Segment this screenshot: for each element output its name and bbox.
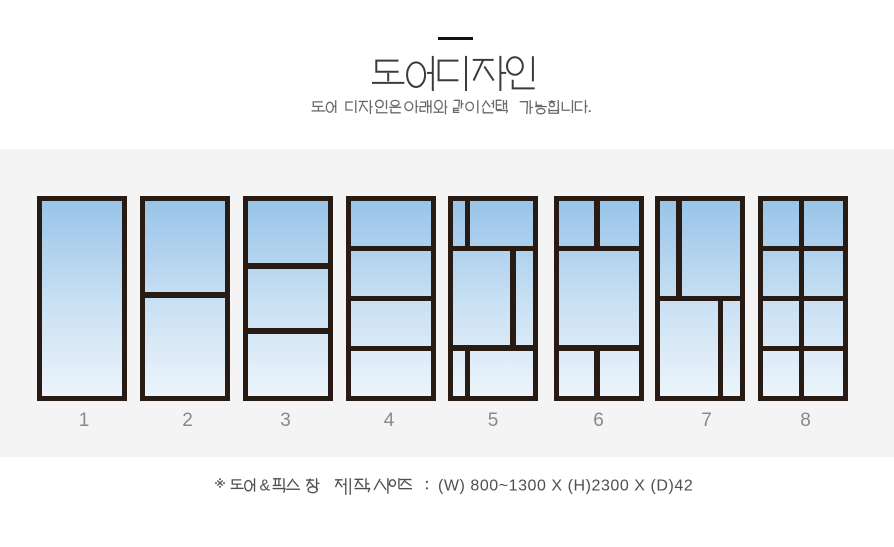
svg-text:(W) 800~1300 X (H)2300 X (D)42: (W) 800~1300 X (H)2300 X (D)42 bbox=[438, 478, 693, 495]
svg-text:&: & bbox=[260, 478, 271, 495]
